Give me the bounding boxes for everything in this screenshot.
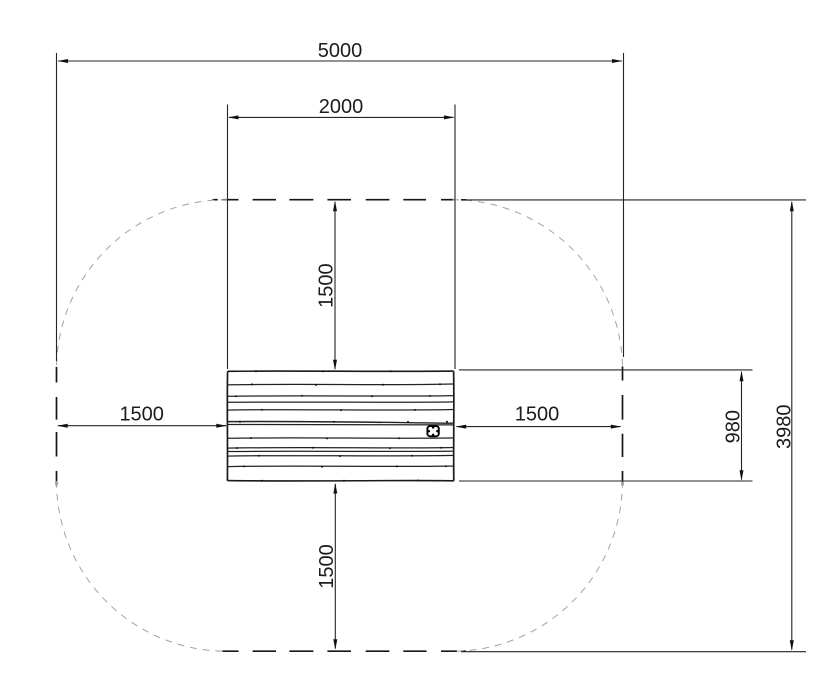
svg-text:1500: 1500 — [316, 544, 338, 589]
svg-text:1500: 1500 — [315, 263, 337, 308]
svg-text:1500: 1500 — [119, 403, 164, 425]
svg-text:2000: 2000 — [319, 96, 364, 118]
svg-text:980: 980 — [723, 410, 745, 443]
svg-text:3980: 3980 — [774, 404, 796, 449]
svg-text:1500: 1500 — [515, 404, 560, 426]
svg-text:5000: 5000 — [318, 40, 363, 62]
